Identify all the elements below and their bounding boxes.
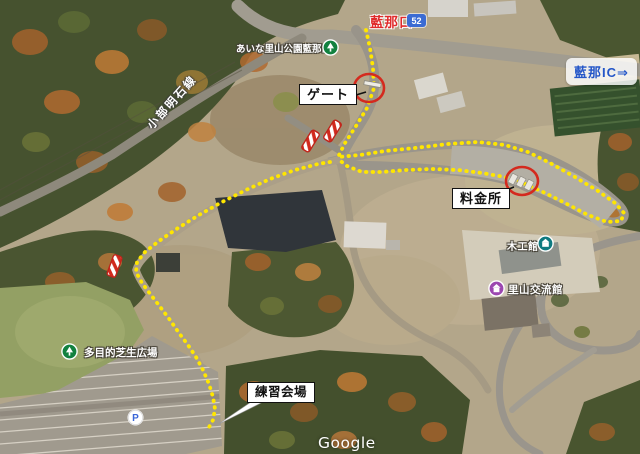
parking-icon[interactable]: P [127, 409, 144, 426]
aerial-imagery [0, 0, 640, 454]
ic-direction-sign: 藍那IC⇒ [566, 58, 637, 85]
venue-annotation: 練習会場 [247, 382, 315, 403]
poi-label-park-entrance[interactable]: あいな里山公園藍那口 [236, 41, 331, 55]
poi-label-woodworking[interactable]: 木工館 [507, 238, 539, 253]
lawn-poi-icon[interactable] [61, 343, 78, 360]
poi-label-lawn[interactable]: 多目的芝生広場 [84, 345, 158, 360]
toll-annotation: 料金所 [452, 188, 510, 209]
exchange-hall-poi-icon[interactable] [488, 280, 505, 297]
poi-label-exchange-hall[interactable]: 里山交流館 [508, 282, 563, 297]
pond [215, 190, 336, 252]
route-shield: 52 [407, 14, 426, 27]
gate-annotation: ゲート [299, 84, 357, 105]
google-watermark: Google [318, 434, 376, 452]
parking-letter: P [132, 413, 139, 424]
park-pin-icon[interactable] [322, 39, 339, 56]
satellite-map[interactable]: 藍那口 52 あいな里山公園藍那口 小部明石線 藍那IC⇒ ゲート 料金所 練習… [0, 0, 640, 454]
woodworking-poi-icon[interactable] [537, 235, 554, 252]
